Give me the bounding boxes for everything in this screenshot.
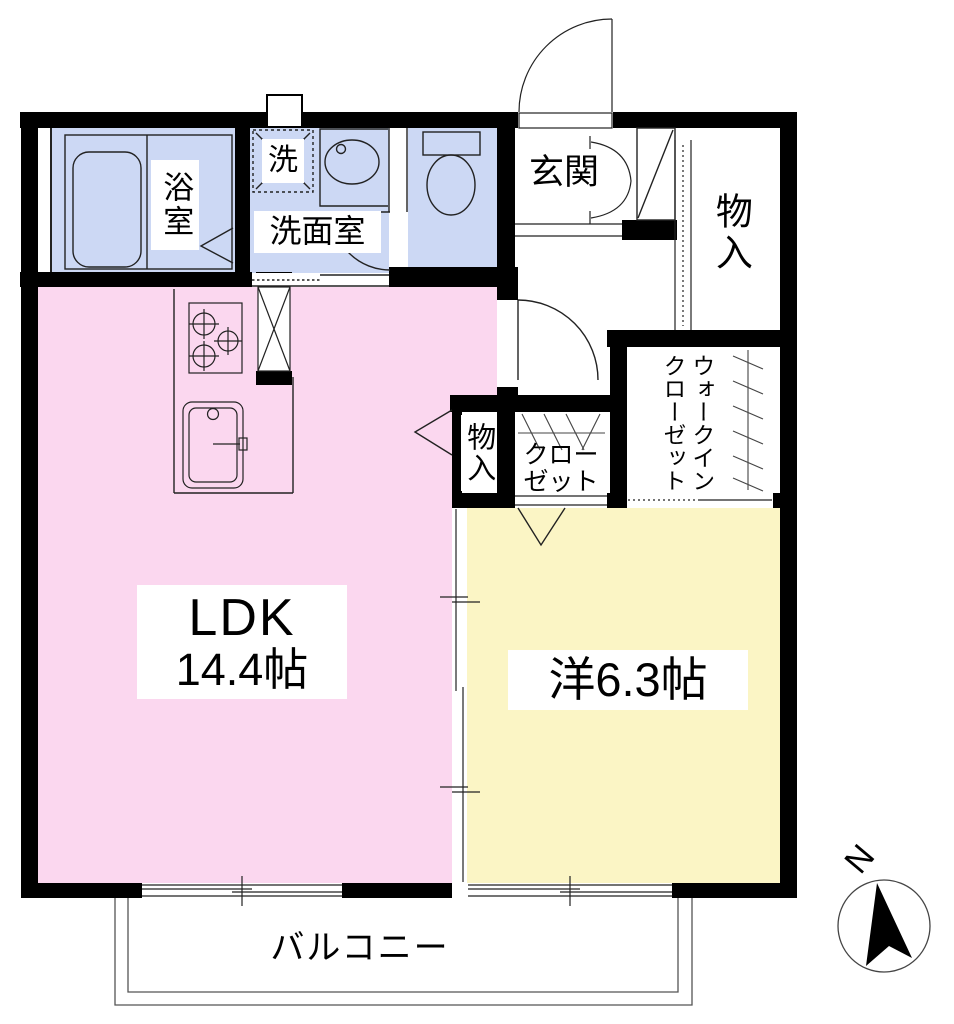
wall-bottom-3 (672, 883, 797, 898)
left-service-strip (38, 128, 52, 272)
partition-band (452, 508, 467, 883)
wall-western-top-3 (773, 493, 780, 508)
walkin-closet-label: ウォークインクローゼット (658, 350, 716, 496)
wall-right (780, 112, 797, 898)
wall-western-top-1 (452, 493, 515, 508)
north-label: N (837, 838, 883, 882)
ldk-size: 14.4帖 (176, 646, 309, 693)
storage-top-label: 物入 (702, 178, 758, 288)
hall-door (518, 300, 598, 380)
closet-label: クローゼット (517, 442, 605, 496)
window-ldk (142, 883, 342, 898)
wall-bottom-2 (342, 883, 452, 898)
wall-western-top-2 (607, 493, 627, 508)
wall-toilet-bottom (389, 267, 497, 287)
wall-hall-left-mid (497, 267, 518, 300)
storage-mid-label: 物入 (461, 415, 496, 491)
western-room-label: 洋6.3帖 (508, 650, 748, 710)
wall-wet-bottom (20, 272, 252, 287)
north-arrow-icon (838, 880, 930, 972)
wall-top-right (612, 112, 797, 128)
bathroom-label: 浴室 (151, 160, 199, 250)
wall-wic-top (607, 330, 780, 347)
pipe-space-notch (266, 94, 303, 128)
floor-plan: 浴室 洗 洗面室 玄関 物入 物入 クローゼット ウォークインクローゼット LD… (0, 0, 954, 1024)
shoe-cabinet-icon (637, 128, 675, 220)
wall-left (21, 112, 38, 898)
balcony-label: バルコニー (265, 928, 455, 970)
wall-bath-wash (235, 128, 250, 272)
wall-storage-mid-right (497, 410, 515, 493)
wall-top-mid (303, 112, 520, 128)
washroom-door-band (252, 273, 389, 287)
wall-bottom-1 (21, 883, 142, 898)
washer-label: 洗 (262, 139, 304, 183)
wall-wic-left (610, 347, 627, 493)
ldk-label: LDK 14.4帖 (137, 585, 347, 699)
wall-shoebox-bottom (622, 220, 677, 240)
partition-gap-bottom (452, 883, 467, 898)
entrance-label: 玄関 (512, 152, 616, 194)
wall-top-left (20, 112, 266, 128)
ldk-name: LDK (188, 591, 295, 646)
bathroom-area (52, 128, 235, 274)
wall-hall-bottom (450, 395, 620, 412)
toilet-area (408, 128, 497, 267)
entrance-doorway (518, 112, 613, 128)
window-western (468, 883, 672, 898)
washroom-label: 洗面室 (254, 211, 381, 253)
wic-hanger-icon (733, 350, 763, 491)
genkan-step (515, 224, 622, 236)
duct-stub-bottom (256, 371, 292, 385)
storage-top-door (675, 140, 691, 330)
